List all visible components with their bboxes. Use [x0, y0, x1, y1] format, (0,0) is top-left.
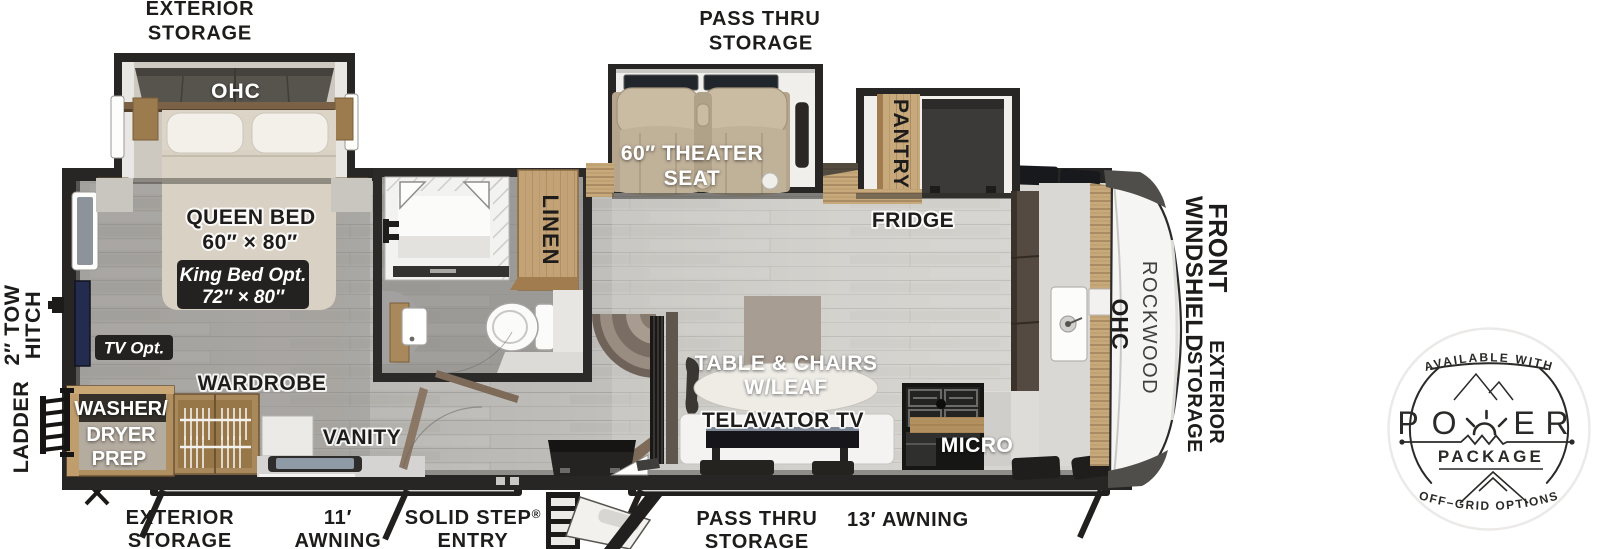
svg-text:TV Opt.: TV Opt.: [104, 339, 164, 358]
svg-text:VANITY: VANITY: [323, 426, 401, 449]
svg-text:EXTERIOR: EXTERIOR: [1205, 340, 1227, 444]
svg-text:TELAVATOR TV: TELAVATOR TV: [702, 409, 864, 432]
svg-text:King Bed Opt.: King Bed Opt.: [180, 265, 307, 286]
svg-text:TABLE & CHAIRS: TABLE & CHAIRS: [695, 352, 878, 375]
svg-text:PANTRY: PANTRY: [889, 99, 912, 189]
svg-text:PACKAGE: PACKAGE: [1438, 447, 1544, 466]
svg-text:13′ AWNING: 13′ AWNING: [847, 509, 969, 531]
svg-text:ROCKWOOD: ROCKWOOD: [1138, 261, 1160, 395]
svg-text:LADDER: LADDER: [9, 381, 33, 474]
svg-text:60″ × 80″: 60″ × 80″: [202, 231, 297, 254]
svg-text:PASS THRU: PASS THRU: [696, 508, 817, 530]
svg-text:ENTRY: ENTRY: [437, 530, 508, 549]
svg-text:SEAT: SEAT: [664, 167, 720, 190]
svg-text:WARDROBE: WARDROBE: [198, 372, 327, 395]
svg-text:STORAGE: STORAGE: [128, 530, 232, 549]
svg-text:EXTERIOR: EXTERIOR: [126, 507, 235, 529]
svg-text:STORAGE: STORAGE: [709, 33, 813, 55]
svg-text:HITCH: HITCH: [21, 291, 45, 359]
svg-text:EXTERIOR: EXTERIOR: [146, 0, 255, 20]
svg-text:E: E: [1513, 405, 1534, 441]
svg-text:11′: 11′: [324, 507, 352, 529]
svg-text:72″ × 80″: 72″ × 80″: [202, 287, 285, 308]
svg-text:P: P: [1397, 405, 1418, 441]
svg-text:MICRO: MICRO: [941, 434, 1014, 457]
svg-text:STORAGE: STORAGE: [1183, 351, 1205, 453]
svg-text:PREP: PREP: [92, 448, 146, 470]
svg-text:LINEN: LINEN: [538, 195, 563, 266]
svg-text:QUEEN BED: QUEEN BED: [186, 206, 315, 229]
svg-text:OHC: OHC: [1107, 298, 1133, 349]
svg-text:AWNING: AWNING: [294, 530, 381, 549]
svg-text:STORAGE: STORAGE: [148, 23, 252, 45]
svg-text:SOLID STEP®: SOLID STEP®: [405, 507, 542, 529]
svg-text:PASS THRU: PASS THRU: [699, 8, 820, 30]
svg-text:WINDSHIELD: WINDSHIELD: [1180, 196, 1207, 352]
svg-text:O: O: [1432, 405, 1457, 441]
svg-text:R: R: [1545, 405, 1568, 441]
svg-text:FRIDGE: FRIDGE: [872, 209, 954, 232]
svg-text:W/LEAF: W/LEAF: [744, 376, 827, 399]
svg-text:DRYER: DRYER: [86, 424, 156, 446]
svg-text:WASHER/: WASHER/: [74, 398, 168, 420]
svg-text:STORAGE: STORAGE: [705, 531, 809, 549]
svg-text:60″ THEATER: 60″ THEATER: [621, 142, 763, 165]
svg-text:OHC: OHC: [211, 80, 261, 103]
